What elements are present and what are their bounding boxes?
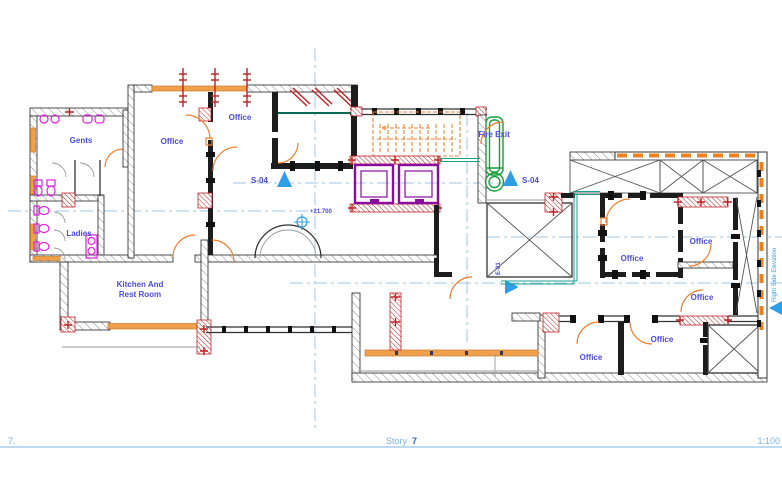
room-label-office-bottom-right: Office — [651, 335, 674, 344]
elevator-2 — [399, 165, 438, 203]
section-marker-right: S-04 — [503, 170, 539, 186]
shaft-triangle-icon — [505, 280, 518, 293]
elevator-shaft-e01: E-01 — [487, 193, 575, 293]
room-label-kitchen-2: Rest Room — [119, 290, 161, 299]
central-corridor: +21.700 — [173, 209, 472, 299]
section-marker-left: S-04 — [251, 171, 292, 187]
stall-door-arc — [80, 163, 94, 177]
right-side-elevation-marker: Right Side Elevation — [769, 248, 782, 315]
story-label: Story — [386, 436, 408, 446]
column-marker — [62, 193, 75, 207]
door-arc — [173, 235, 195, 257]
gents-fixtures — [34, 108, 104, 196]
door-arc — [606, 199, 630, 223]
roof-x-brace-zone — [570, 160, 757, 193]
story-number: 7 — [412, 436, 417, 446]
sanitary-block: Gents Ladies — [30, 108, 173, 262]
elevation-marker: +21.700 — [294, 209, 333, 230]
upper-right-block: E-01 Office Office — [487, 152, 782, 378]
fire-exit-label: Fire Exit — [478, 130, 510, 139]
story-bar: 7. Story 7 1:100 — [0, 436, 782, 447]
section-label: S-04 — [522, 176, 539, 185]
curtainwall-link — [440, 159, 480, 162]
sheet-number: 7. — [8, 436, 16, 446]
room-label-office-right-lower: Office — [691, 293, 714, 302]
column-marker — [199, 108, 211, 121]
fire-exit: Fire Exit — [478, 115, 510, 203]
door-arc — [105, 149, 123, 167]
column-marker — [543, 313, 559, 332]
arch-inner — [260, 230, 316, 258]
door-arc — [213, 147, 237, 171]
right-outer-wall — [757, 152, 767, 378]
room-label-kitchen-1: Kitchen And — [117, 280, 164, 289]
stall-door-arc — [52, 163, 66, 177]
room-label-ladies: Ladies — [66, 229, 92, 238]
floor-plan-canvas: Gents Ladies Office Office — [0, 0, 782, 499]
shaft-bottom-right — [708, 325, 760, 373]
window-wall-south — [206, 326, 353, 333]
scale-indicator[interactable]: 1:100 — [757, 436, 780, 446]
room-label-office-center-right: Office — [621, 254, 644, 263]
room-label-office-top: Office — [229, 113, 252, 122]
stall-door-arc — [54, 230, 65, 241]
shaft-label: E-01 — [496, 262, 502, 275]
column-marker — [198, 193, 212, 208]
stall-door-arc — [54, 212, 65, 223]
room-label-office-bottom-left: Office — [580, 353, 603, 362]
elevation-value: +21.700 — [310, 209, 333, 215]
door-arc — [630, 322, 652, 344]
elevator-wall — [350, 204, 440, 212]
room-label-office-left: Office — [161, 137, 184, 146]
room-label-office-right-upper: Office — [690, 237, 713, 246]
stair-elevator-core: Fire Exit S-04 — [278, 85, 539, 258]
section-triangle-icon — [277, 171, 292, 187]
cad-viewport: Gents Ladies Office Office — [0, 0, 782, 499]
office-top-wall — [543, 313, 767, 332]
door-arc — [278, 143, 298, 163]
elevator-1 — [355, 165, 393, 203]
room-label-gents: Gents — [70, 136, 93, 145]
shaft-far-right — [731, 197, 757, 315]
section-label: S-04 — [251, 176, 268, 185]
stair-above-outline — [373, 112, 460, 156]
section-triangle-icon — [503, 170, 518, 186]
office-center-right-walls — [598, 191, 683, 279]
elevation-view-triangle-icon — [769, 301, 782, 315]
door-arc — [577, 322, 599, 344]
elevation-view-label: Right Side Elevation — [772, 248, 778, 302]
door-arc — [450, 277, 472, 299]
story-indicator[interactable]: Story 7 — [386, 436, 417, 446]
